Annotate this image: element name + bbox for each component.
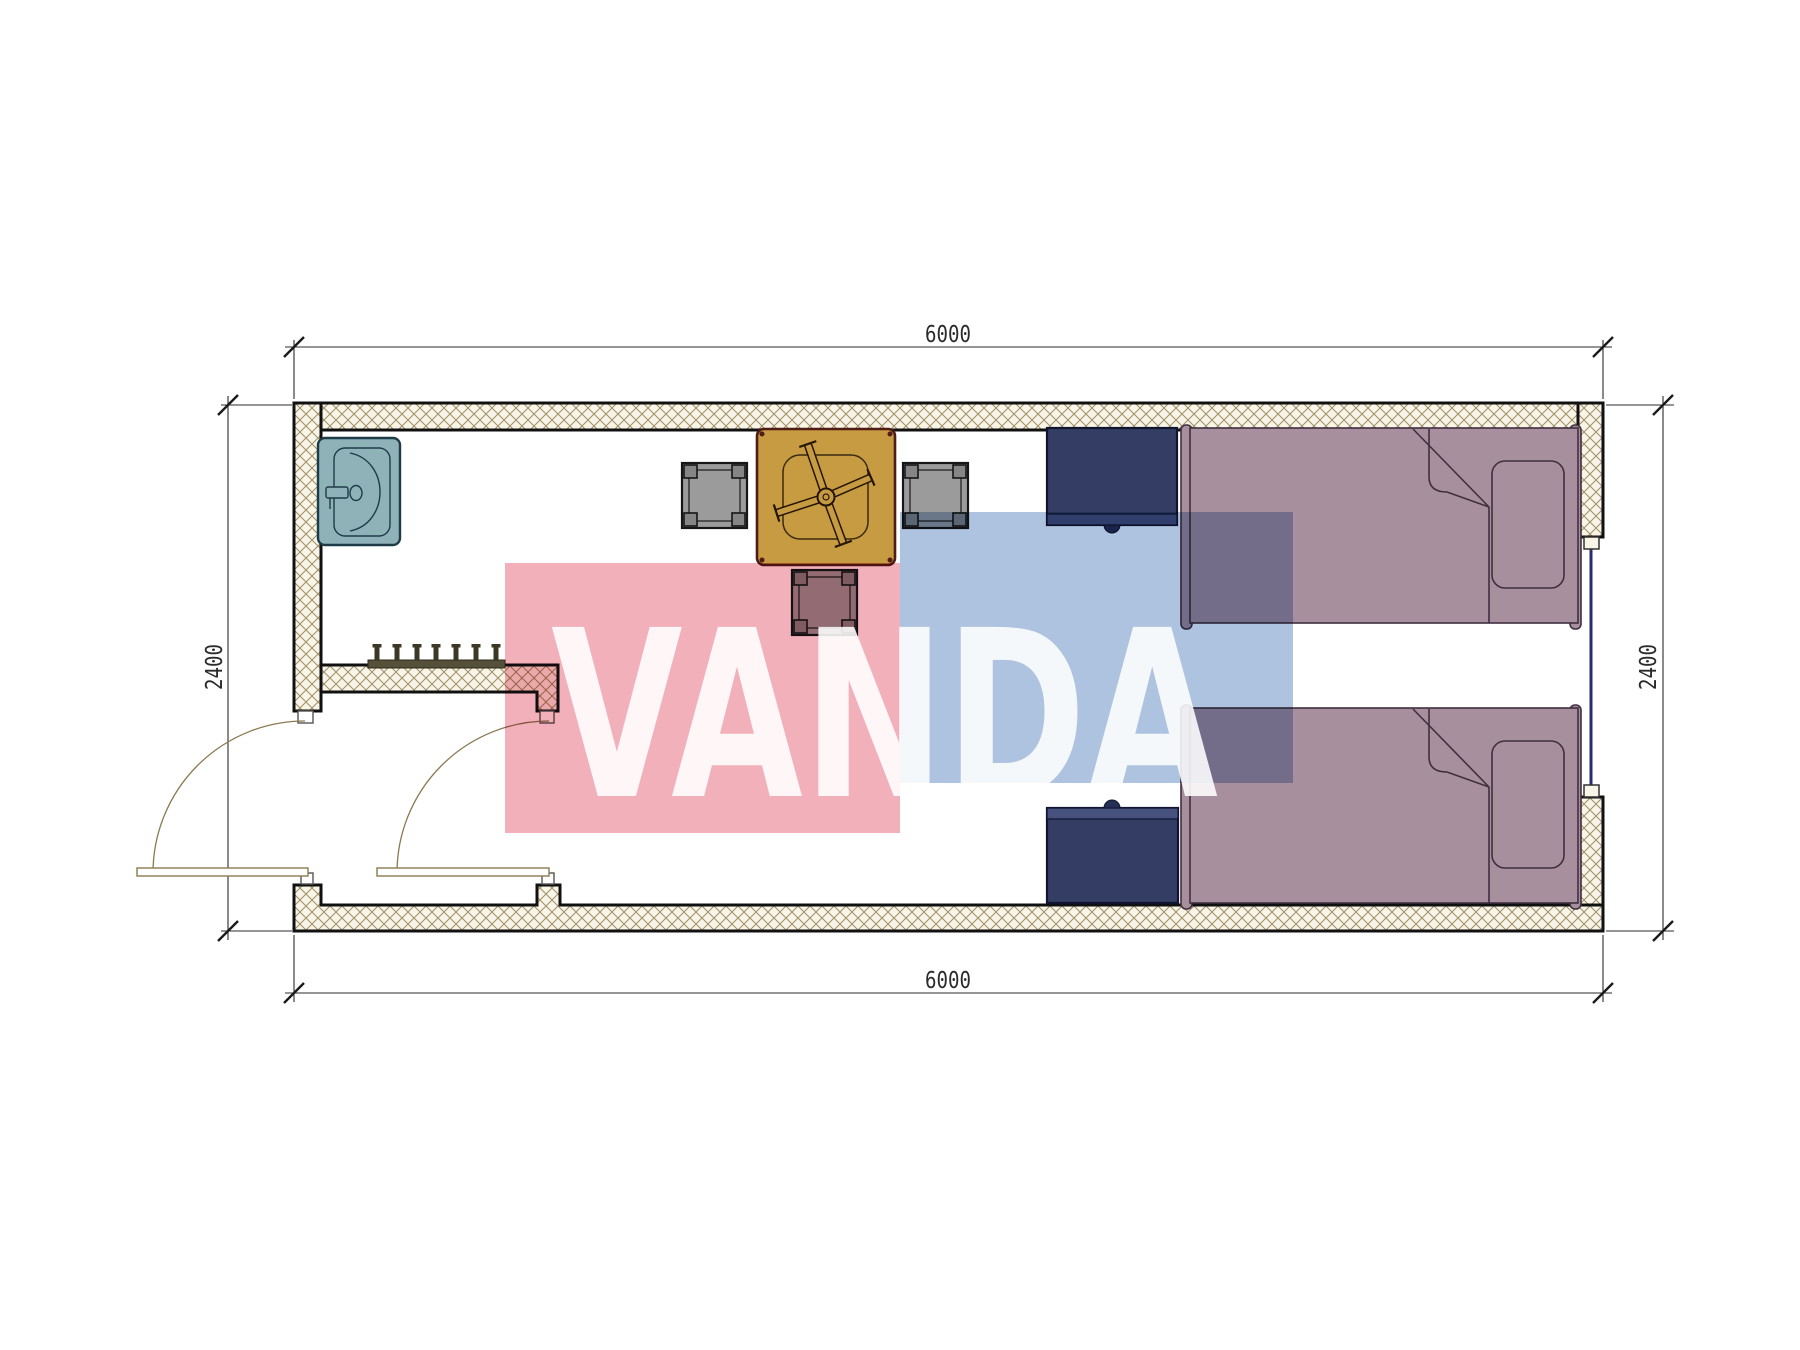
wash-basin [318,438,400,545]
dining-table [757,429,895,565]
door-swing-arc [153,721,305,873]
coat-hooks [368,644,505,668]
door-leaf [377,868,549,876]
table-corner-mark [760,558,765,563]
door-leaf [137,868,308,876]
faucet-icon [326,487,348,498]
dimension-label-top: 6000 [925,322,971,348]
window-right [1584,537,1599,797]
table-corner-mark [888,432,893,437]
wall-top [294,403,1603,430]
dimension-label-left: 2400 [202,644,228,690]
hook-prongs [373,644,501,660]
hook-bar [368,660,505,668]
window-frame-block [1584,537,1599,549]
nightstand-body [1047,428,1177,525]
dimension-left: 2400 [202,395,292,941]
watermark: VANDA [505,512,1293,851]
table-corner-mark [760,432,765,437]
dimension-label-right: 2400 [1636,644,1662,690]
floor-plan-canvas: 6000 6000 2400 2400 [0,0,1800,1350]
floor-plan-page: 6000 6000 2400 2400 [0,0,1800,1350]
watermark-text: VANDA [551,581,1218,851]
dimension-bottom: 6000 [284,935,1613,1003]
dimension-right: 2400 [1606,395,1674,941]
chair-left [682,463,747,528]
entry-door [137,721,308,876]
window-frame-block [1584,785,1599,797]
dimension-top: 6000 [284,322,1613,399]
table-corner-mark [888,558,893,563]
dimension-label-bottom: 6000 [925,968,971,994]
